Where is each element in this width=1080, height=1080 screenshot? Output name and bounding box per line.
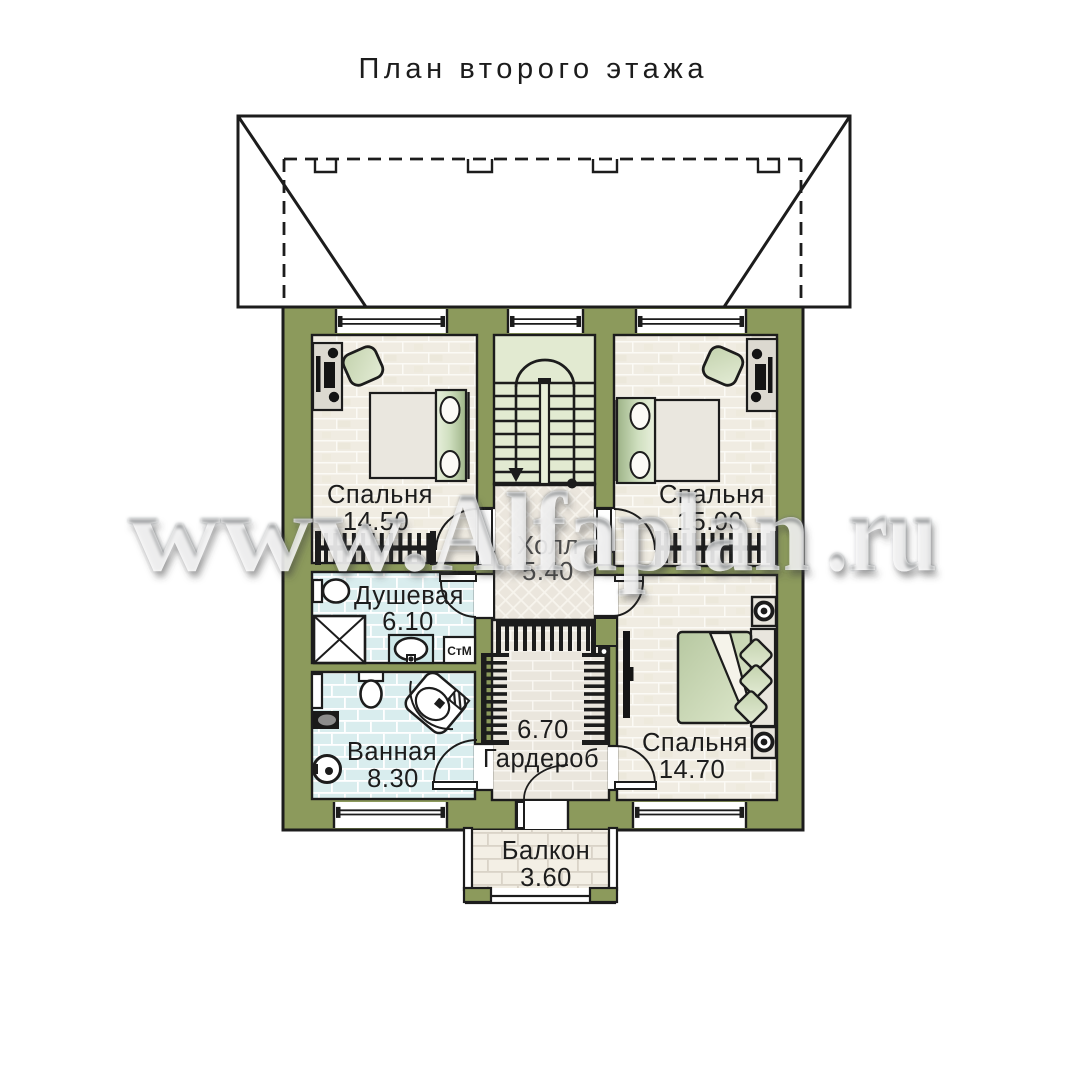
svg-text:.ru: .ru [826,471,937,595]
svg-text:www.: www. [128,471,431,595]
svg-text:14.70: 14.70 [659,756,725,784]
svg-text:6.70: 6.70 [517,716,569,744]
svg-text:Спальня: Спальня [642,729,748,757]
svg-text:Ванная: Ванная [347,738,437,766]
svg-text:План второго этажа: План второго этажа [359,53,705,85]
svg-text:Гардероб: Гардероб [483,745,599,773]
svg-text:6.10: 6.10 [382,608,434,636]
svg-text:3.60: 3.60 [520,864,572,892]
svg-text:Alfaplan: Alfaplan [431,471,810,595]
svg-text:8.30: 8.30 [367,765,419,793]
svg-text:СтМ: СтМ [447,644,472,658]
svg-text:Балкон: Балкон [502,837,591,865]
